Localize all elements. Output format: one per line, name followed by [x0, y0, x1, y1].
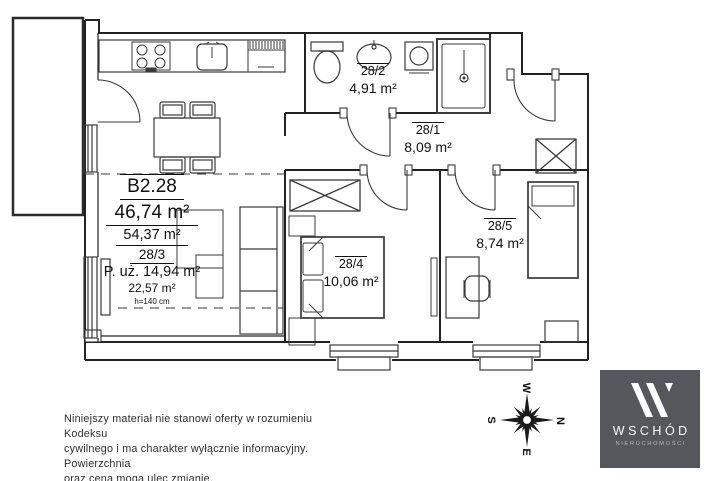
disclaimer-line-3: oraz cena mogą ulec zmianie. [64, 472, 342, 481]
nightstand-icon [289, 318, 315, 345]
unit-usable-area: P. uż. 14,94 m² [104, 264, 200, 281]
room-id: 28/5 [484, 218, 516, 234]
room-area: 10,06 m² [309, 273, 393, 290]
radiator-icon [431, 258, 437, 316]
balcony-outline [13, 18, 83, 215]
room-area: 8,09 m² [391, 139, 465, 156]
compass-icon: W N S E [485, 383, 566, 456]
shower-icon [437, 39, 490, 113]
compass-south-label: S [485, 416, 497, 423]
sofa-icon [240, 207, 283, 334]
fridge-icon [248, 40, 285, 72]
disclaimer-line-1: Niniejszy materiał nie stanowi oferty w … [64, 412, 342, 442]
logo-w-mark-icon [627, 383, 673, 417]
unit-code: 28/3 [130, 246, 174, 264]
kitchen-sink-icon [197, 42, 227, 70]
room-28-5-furniture [446, 182, 578, 342]
bottom-window-1-icon [330, 345, 398, 370]
desk-icon [446, 257, 479, 318]
wardrobe-icon [290, 180, 360, 211]
unit-area-tertiary: 22,57 m² [128, 281, 175, 296]
compass-west-label: W [520, 383, 532, 394]
room-area: 8,74 m² [461, 235, 539, 252]
disclaimer-line-2: cywilnego i ma charakter wyłącznie infor… [64, 442, 342, 472]
room-id: 28/1 [412, 122, 444, 138]
hall-wardrobe-icon [536, 139, 576, 173]
logo-subtitle: NIERUCHOMOŚCI [614, 441, 686, 447]
room-label-28-5: 28/5 8,74 m² [461, 217, 539, 252]
disclaimer-text: Niniejszy materiał nie stanowi oferty w … [64, 412, 342, 481]
room-label-28-1: 28/1 8,09 m² [391, 121, 465, 156]
unit-info-block: B2.28 46,74 m² 54,37 m² 28/3 P. uż. 14,9… [92, 174, 212, 307]
balcony-door-icon [98, 80, 140, 122]
logo-name: WSCHÓD [609, 424, 690, 438]
company-logo: WSCHÓD NIERUCHOMOŚCI [600, 370, 700, 468]
desk-chair-icon [464, 276, 490, 301]
cabinet-icon [545, 321, 578, 342]
unit-height-note: h=140 cm [134, 296, 169, 307]
room-28-5-door-icon [448, 165, 500, 210]
dining-table-icon [154, 102, 220, 173]
compass-east-label: E [520, 448, 532, 455]
room-label-28-4: 28/4 10,06 m² [309, 255, 393, 290]
unit-area-main: 46,74 m² [106, 200, 199, 226]
room-id: 28/2 [357, 63, 389, 79]
bathroom-door-icon [340, 108, 396, 156]
unit-area-secondary: 54,37 m² [116, 226, 187, 246]
room-label-28-2: 28/2 4,91 m² [337, 62, 409, 97]
room-id: 28/4 [335, 256, 367, 272]
room-area: 4,91 m² [337, 80, 409, 97]
entrance-door-icon [507, 69, 559, 121]
kitchen-area [99, 40, 285, 173]
floor-plan-page: W N S E B2.28 46,74 m² 54,37 m² 28/3 P. … [0, 0, 710, 481]
nightstand-icon [289, 216, 315, 236]
compass-north-label: N [554, 417, 566, 425]
washing-machine-icon [405, 42, 433, 73]
bottom-window-2-icon [473, 345, 540, 370]
room-28-4-door-icon [360, 165, 412, 210]
unit-number-label: B2.28 [120, 174, 184, 200]
stove-icon [132, 42, 170, 71]
kitchen-counter [99, 40, 285, 72]
